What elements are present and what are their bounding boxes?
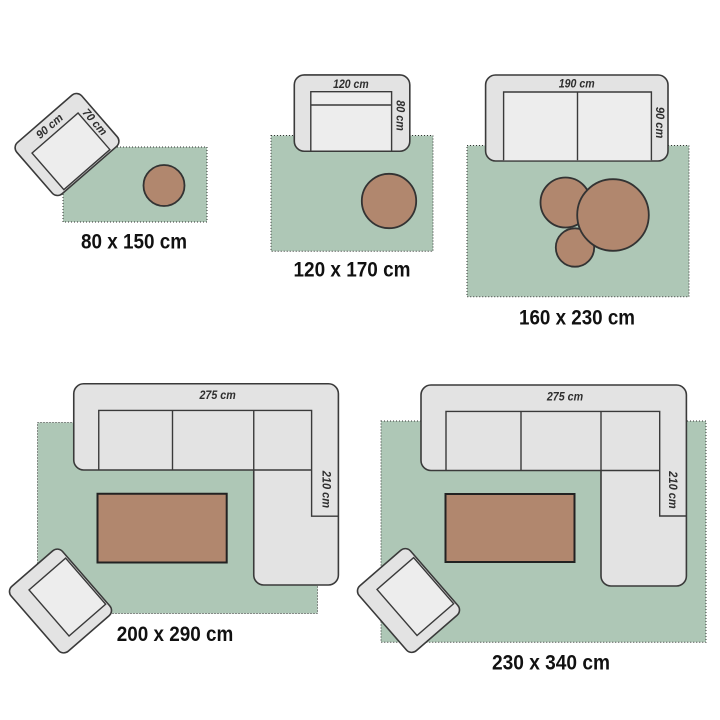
svg-text:80 x 150 cm: 80 x 150 cm xyxy=(81,231,187,254)
svg-text:120 x 170 cm: 120 x 170 cm xyxy=(294,258,411,281)
svg-text:200 x 290 cm: 200 x 290 cm xyxy=(117,623,234,646)
svg-text:90 cm: 90 cm xyxy=(653,107,665,139)
svg-text:230 x 340 cm: 230 x 340 cm xyxy=(492,652,610,675)
svg-text:160 x 230 cm: 160 x 230 cm xyxy=(519,307,635,330)
svg-text:275 cm: 275 cm xyxy=(546,392,583,404)
svg-text:190 cm: 190 cm xyxy=(559,78,595,90)
svg-text:80 cm: 80 cm xyxy=(393,100,405,131)
svg-text:120 cm: 120 cm xyxy=(333,79,369,91)
svg-text:210 cm: 210 cm xyxy=(666,470,678,508)
svg-text:275 cm: 275 cm xyxy=(199,390,236,402)
svg-text:210 cm: 210 cm xyxy=(320,470,332,508)
